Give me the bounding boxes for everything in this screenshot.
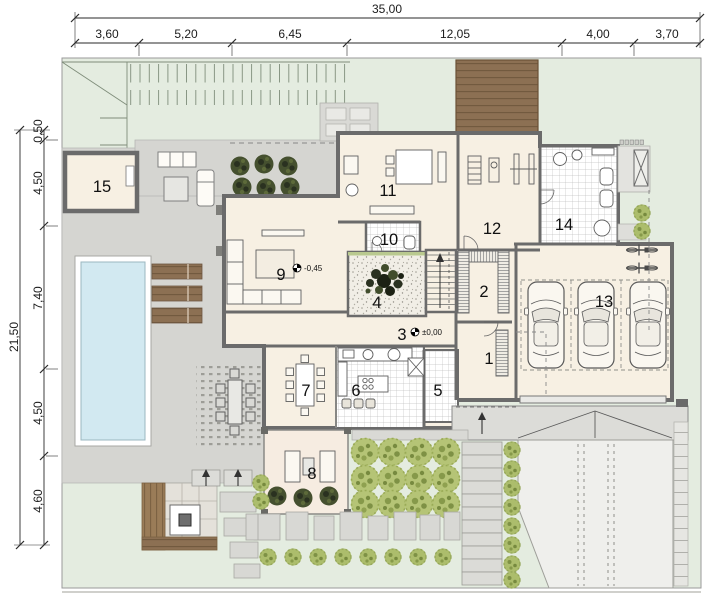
swimming-pool <box>81 262 145 440</box>
boundary-slab-path <box>674 422 688 586</box>
sun-loungers <box>152 264 202 323</box>
shaft <box>408 358 424 376</box>
dimension-top: 35,00 3,60 5,20 6,45 12,05 4,00 3,70 <box>71 2 704 56</box>
canopy-roof <box>452 406 688 440</box>
car-icon <box>525 282 568 368</box>
dim-seg: 12,05 <box>440 27 470 41</box>
room-label-10: 10 <box>380 231 398 249</box>
atrium <box>348 252 426 316</box>
dim-seg: 4,50 <box>31 401 45 425</box>
entry-step-markers <box>620 140 644 145</box>
room-label-3: 3 <box>397 326 406 344</box>
chair <box>386 168 394 176</box>
driveway-area <box>452 399 688 589</box>
desk <box>396 150 432 184</box>
room-label-2: 2 <box>479 283 488 301</box>
wood-bench <box>142 537 217 550</box>
room-label-11: 11 <box>379 182 396 200</box>
fire-pit <box>179 514 191 526</box>
dim-ticks-top <box>71 39 704 56</box>
room-label-6: 6 <box>351 382 360 400</box>
level-living: -0,45 <box>304 264 323 273</box>
dim-seg: 6,45 <box>278 27 302 41</box>
dim-total-height: 21,50 <box>7 322 21 352</box>
sideboard <box>370 206 414 214</box>
floor-plan-drawing: 35,00 3,60 5,20 6,45 12,05 4,00 3,70 21,… <box>0 0 717 600</box>
dim-seg: 3,70 <box>655 27 679 41</box>
dim-seg: 7,40 <box>31 286 45 310</box>
level-marker-icon <box>293 264 301 272</box>
dark-bush <box>320 487 339 506</box>
cabinet <box>438 152 446 182</box>
dim-seg: 4,60 <box>31 489 45 513</box>
room-label-5: 5 <box>433 382 442 400</box>
dim-seg: 3,60 <box>95 27 119 41</box>
bush-icon <box>634 205 651 222</box>
lounge-terrace-8 <box>261 427 351 516</box>
dim-seg: 4,00 <box>586 27 610 41</box>
driveway <box>518 440 673 588</box>
sofa <box>227 240 243 304</box>
room-label-14: 14 <box>555 216 573 234</box>
trellis-hatch <box>127 64 350 105</box>
dimension-left: 21,50 0,50 4,50 7,40 4,50 4,60 <box>7 119 58 549</box>
floor-plan-sheet: 35,00 3,60 5,20 6,45 12,05 4,00 3,70 21,… <box>0 0 717 600</box>
bush-icon <box>253 475 270 492</box>
bush-icon <box>634 223 651 240</box>
console <box>262 230 304 236</box>
entry-closet <box>496 330 508 376</box>
room-label-13: 13 <box>595 293 613 311</box>
stairs-exterior <box>462 442 502 585</box>
coffee-table <box>256 250 294 278</box>
room-label-1: 1 <box>484 350 493 368</box>
level-marker-icon <box>411 328 419 336</box>
tree-grid <box>351 438 460 518</box>
room-label-7: 7 <box>301 382 310 400</box>
dark-bush <box>294 489 313 508</box>
entry-shaft <box>634 150 648 186</box>
sofa <box>243 290 301 304</box>
room-label-15: 15 <box>93 178 111 196</box>
room-label-4: 4 <box>372 294 381 312</box>
side-table <box>346 184 358 196</box>
entry-wood-deck <box>456 60 538 140</box>
toilet <box>404 236 415 249</box>
armchair <box>344 156 358 174</box>
stairs-interior <box>426 250 456 312</box>
level-hall: ±0,00 <box>422 328 443 337</box>
dim-seg: 5,20 <box>174 27 198 41</box>
chair <box>386 156 394 164</box>
canopy-pillar <box>676 399 688 407</box>
dark-bush <box>268 487 287 506</box>
room-label-9: 9 <box>276 266 285 284</box>
dim-seg: 0,50 <box>31 119 45 143</box>
dim-total-width: 35,00 <box>372 2 402 16</box>
bush-icon <box>253 493 270 510</box>
room-label-8: 8 <box>307 465 316 483</box>
room-label-12: 12 <box>483 220 501 238</box>
garage-door <box>520 396 666 403</box>
room-15-sink-unit <box>126 166 134 186</box>
car-icon <box>627 282 670 368</box>
dim-seg: 4,50 <box>31 171 45 195</box>
